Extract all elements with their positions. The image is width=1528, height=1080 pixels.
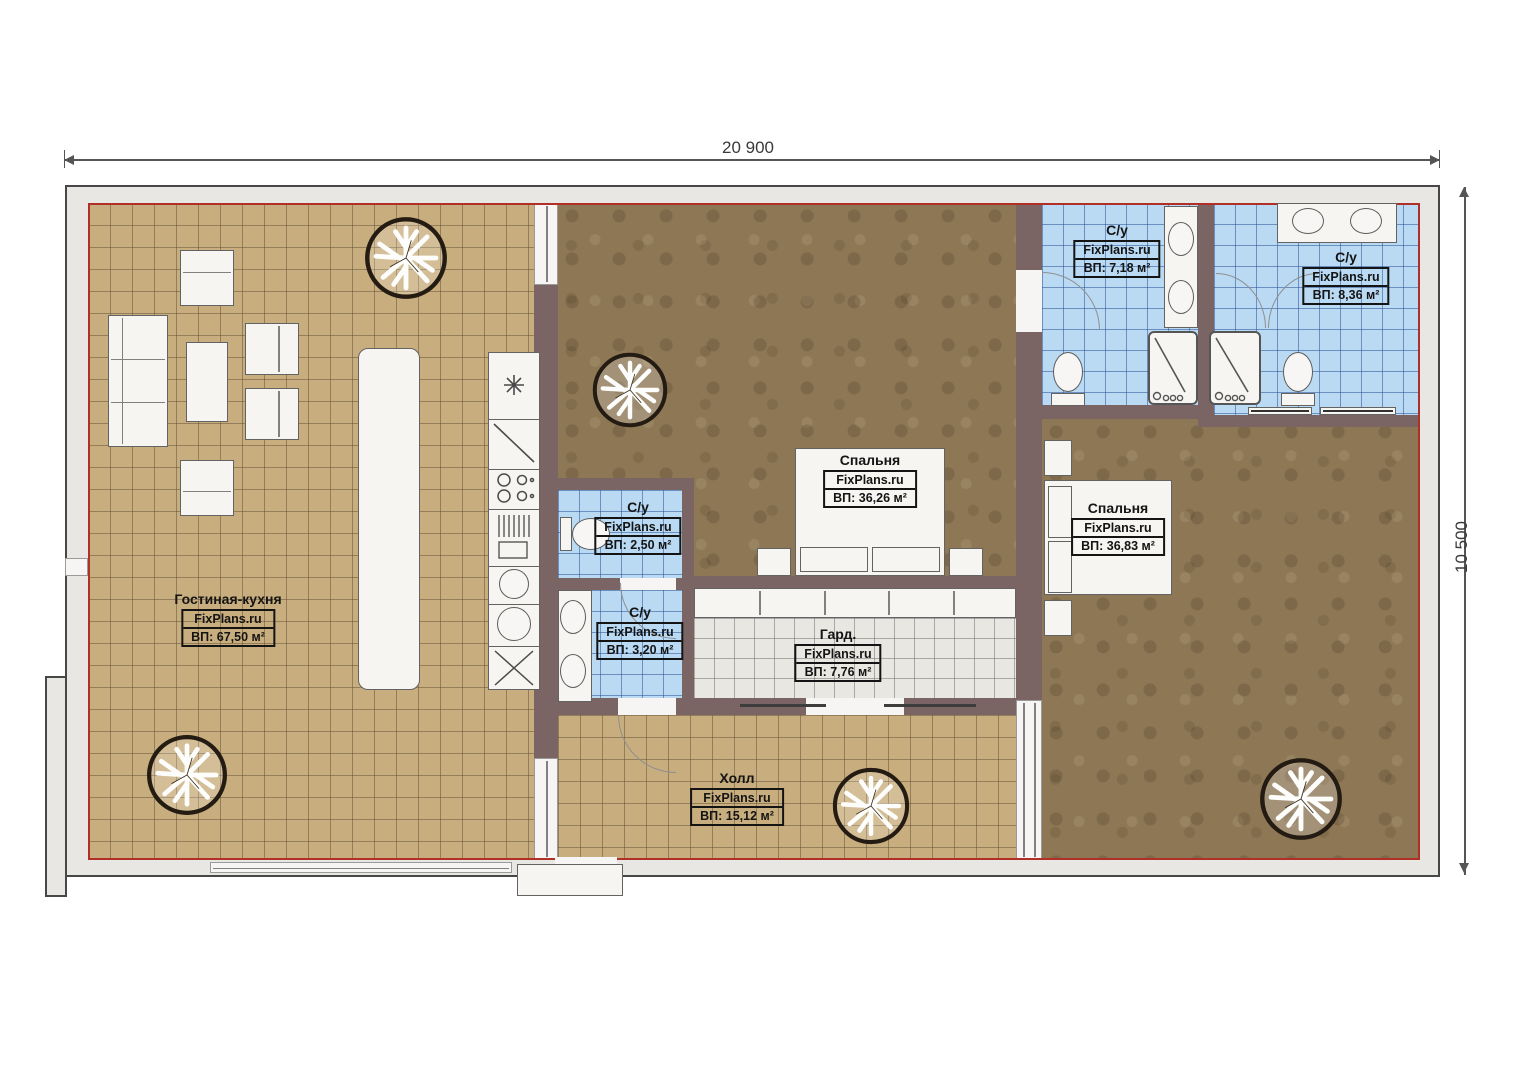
room-label-bath-small-2: С/у FixPlans.ru ВП: 3,20 м²: [596, 604, 683, 660]
watermark-text: FixPlans.ru: [598, 624, 681, 642]
sliding-door-panel: [740, 704, 826, 707]
room-area: ВП: 7,18 м²: [1075, 260, 1158, 276]
dimension-arrow-up: [1459, 187, 1469, 197]
room-label-bath-small-1: С/у FixPlans.ru ВП: 2,50 м²: [594, 499, 681, 555]
room-title: С/у: [596, 604, 683, 620]
room-label-bedroom-1: Спальня FixPlans.ru ВП: 36,26 м²: [823, 452, 917, 508]
armchair: [180, 250, 234, 306]
towel-rail-line: [1323, 410, 1393, 412]
nightstand: [1044, 600, 1072, 636]
room-info-box: FixPlans.ru ВП: 36,83 м²: [1071, 518, 1165, 556]
watermark-text: FixPlans.ru: [796, 646, 879, 664]
room-title: Холл: [690, 770, 784, 786]
room-area: ВП: 2,50 м²: [596, 537, 679, 553]
room-area: ВП: 8,36 м²: [1304, 287, 1387, 303]
exterior-wall-step: [45, 676, 67, 897]
room-title: Спальня: [823, 452, 917, 468]
diagonal-icon: [491, 421, 537, 465]
room-info-box: FixPlans.ru ВП: 8,36 м²: [1302, 267, 1389, 305]
dimension-line-top: [65, 159, 1440, 161]
sofa: [108, 315, 168, 447]
room-info-box: FixPlans.ru ВП: 3,20 м²: [596, 622, 683, 660]
plant-icon: [590, 350, 670, 430]
shower-icon: [1147, 330, 1199, 406]
sink-basin: [1292, 208, 1324, 234]
stove-cell: [489, 469, 539, 510]
room-title: Спальня: [1071, 500, 1165, 516]
toilet-bowl: [1283, 352, 1313, 392]
dimension-arrow-down: [1459, 863, 1469, 873]
toilet-tank: [1281, 393, 1315, 406]
pillow: [872, 547, 940, 572]
window-mullion: [213, 868, 509, 870]
kitchen-sink-bowl: [497, 607, 531, 641]
shower-stall: [1208, 330, 1262, 406]
pillow: [1048, 486, 1072, 538]
nightstand: [757, 548, 791, 576]
dimension-width-label: 20 900: [722, 138, 774, 158]
x-cross-icon: [491, 648, 537, 688]
watermark-text: FixPlans.ru: [692, 790, 782, 808]
sofa-cushion-line: [111, 359, 165, 361]
room-info-box: FixPlans.ru ВП: 7,18 м²: [1073, 240, 1160, 278]
room-area: ВП: 67,50 м²: [183, 629, 273, 645]
shower-icon: [1208, 330, 1262, 406]
sink-basin: [1350, 208, 1382, 234]
room-area: ВП: 36,26 м²: [825, 490, 915, 506]
window-left-wall: [65, 558, 88, 576]
towel-rail: [1320, 407, 1396, 415]
room-info-box: FixPlans.ru ВП: 15,12 м²: [690, 788, 784, 826]
room-area: ВП: 7,76 м²: [796, 664, 879, 680]
room-title: С/у: [1302, 249, 1389, 265]
sink-basin: [560, 600, 586, 634]
closet-divider: [888, 591, 890, 615]
room-info-box: FixPlans.ru ВП: 7,76 м²: [794, 644, 881, 682]
coffee-table: [186, 342, 228, 422]
sofa-back-line: [122, 318, 124, 444]
towel-rail: [1248, 407, 1312, 415]
floor-plan-canvas: 20 900 10 500: [0, 0, 1528, 1080]
window-bottom-wall: [210, 862, 512, 873]
toilet-tank: [1051, 393, 1085, 406]
watermark-text: FixPlans.ru: [1304, 269, 1387, 287]
sink-basin: [1168, 280, 1194, 314]
room-title: С/у: [1073, 222, 1160, 238]
plant-icon: [362, 214, 450, 302]
plant-icon: [144, 732, 230, 818]
room-label-living-kitchen: Гостиная-кухня FixPlans.ru ВП: 67,50 м²: [174, 591, 281, 647]
armchair: [245, 388, 299, 440]
dimension-arrow-left: [64, 155, 74, 165]
nightstand: [949, 548, 983, 576]
room-area: ВП: 3,20 м²: [598, 642, 681, 658]
toilet-tank: [560, 517, 572, 551]
toilet-bowl: [1053, 352, 1083, 392]
room-title: С/у: [594, 499, 681, 515]
nightstand: [1044, 440, 1072, 476]
stove-burners-icon: [491, 471, 537, 505]
armchair-seat-line: [278, 391, 280, 437]
watermark-text: FixPlans.ru: [596, 519, 679, 537]
hatch-icon: [491, 511, 537, 563]
watermark-text: FixPlans.ru: [1075, 242, 1158, 260]
room-label-bath-top-left: С/у FixPlans.ru ВП: 7,18 м²: [1073, 222, 1160, 278]
room-info-box: FixPlans.ru ВП: 2,50 м²: [594, 517, 681, 555]
watermark-text: FixPlans.ru: [825, 472, 915, 490]
sink-basin: [1168, 222, 1194, 256]
fridge-cell: [489, 353, 539, 420]
pillow: [800, 547, 868, 572]
closet-row: [694, 588, 1016, 618]
corner-cabinet-cell: [489, 419, 539, 470]
room-label-wardrobe: Гард. FixPlans.ru ВП: 7,76 м²: [794, 626, 881, 682]
entry-step: [517, 864, 623, 896]
plant-icon: [1257, 755, 1345, 843]
dishwasher-cell: [489, 509, 539, 567]
room-label-bath-top-right: С/у FixPlans.ru ВП: 8,36 м²: [1302, 249, 1389, 305]
room-area: ВП: 36,83 м²: [1073, 538, 1163, 554]
watermark-text: FixPlans.ru: [183, 611, 273, 629]
armchair-seat-line: [278, 326, 280, 372]
sink-basin: [560, 654, 586, 688]
room-label-bedroom-2: Спальня FixPlans.ru ВП: 36,83 м²: [1071, 500, 1165, 556]
closet-divider: [953, 591, 955, 615]
room-title: Гард.: [794, 626, 881, 642]
room-info-box: FixPlans.ru ВП: 67,50 м²: [181, 609, 275, 647]
pillow: [1048, 541, 1072, 593]
laundry-cell: [489, 646, 539, 691]
shower-stall: [1147, 330, 1199, 406]
kitchen-island: [358, 348, 420, 690]
armchair-seat-line: [183, 272, 231, 274]
snowflake-icon: [502, 373, 526, 397]
room-area: ВП: 15,12 м²: [692, 808, 782, 824]
dimension-height-label: 10 500: [1452, 521, 1472, 573]
closet-divider: [759, 591, 761, 615]
towel-rail-line: [1251, 410, 1309, 412]
watermark-text: FixPlans.ru: [1073, 520, 1163, 538]
armchair: [180, 460, 234, 516]
room-info-box: FixPlans.ru ВП: 36,26 м²: [823, 470, 917, 508]
dimension-arrow-right: [1430, 155, 1440, 165]
armchair-seat-line: [183, 491, 231, 493]
armchair: [245, 323, 299, 375]
sofa-cushion-line: [111, 402, 165, 404]
plant-icon: [830, 765, 912, 847]
room-label-hall: Холл FixPlans.ru ВП: 15,12 м²: [690, 770, 784, 826]
sliding-door-panel: [884, 704, 976, 707]
closet-divider: [824, 591, 826, 615]
kitchen-sink-bowl: [499, 569, 529, 599]
room-title: Гостиная-кухня: [174, 591, 281, 607]
